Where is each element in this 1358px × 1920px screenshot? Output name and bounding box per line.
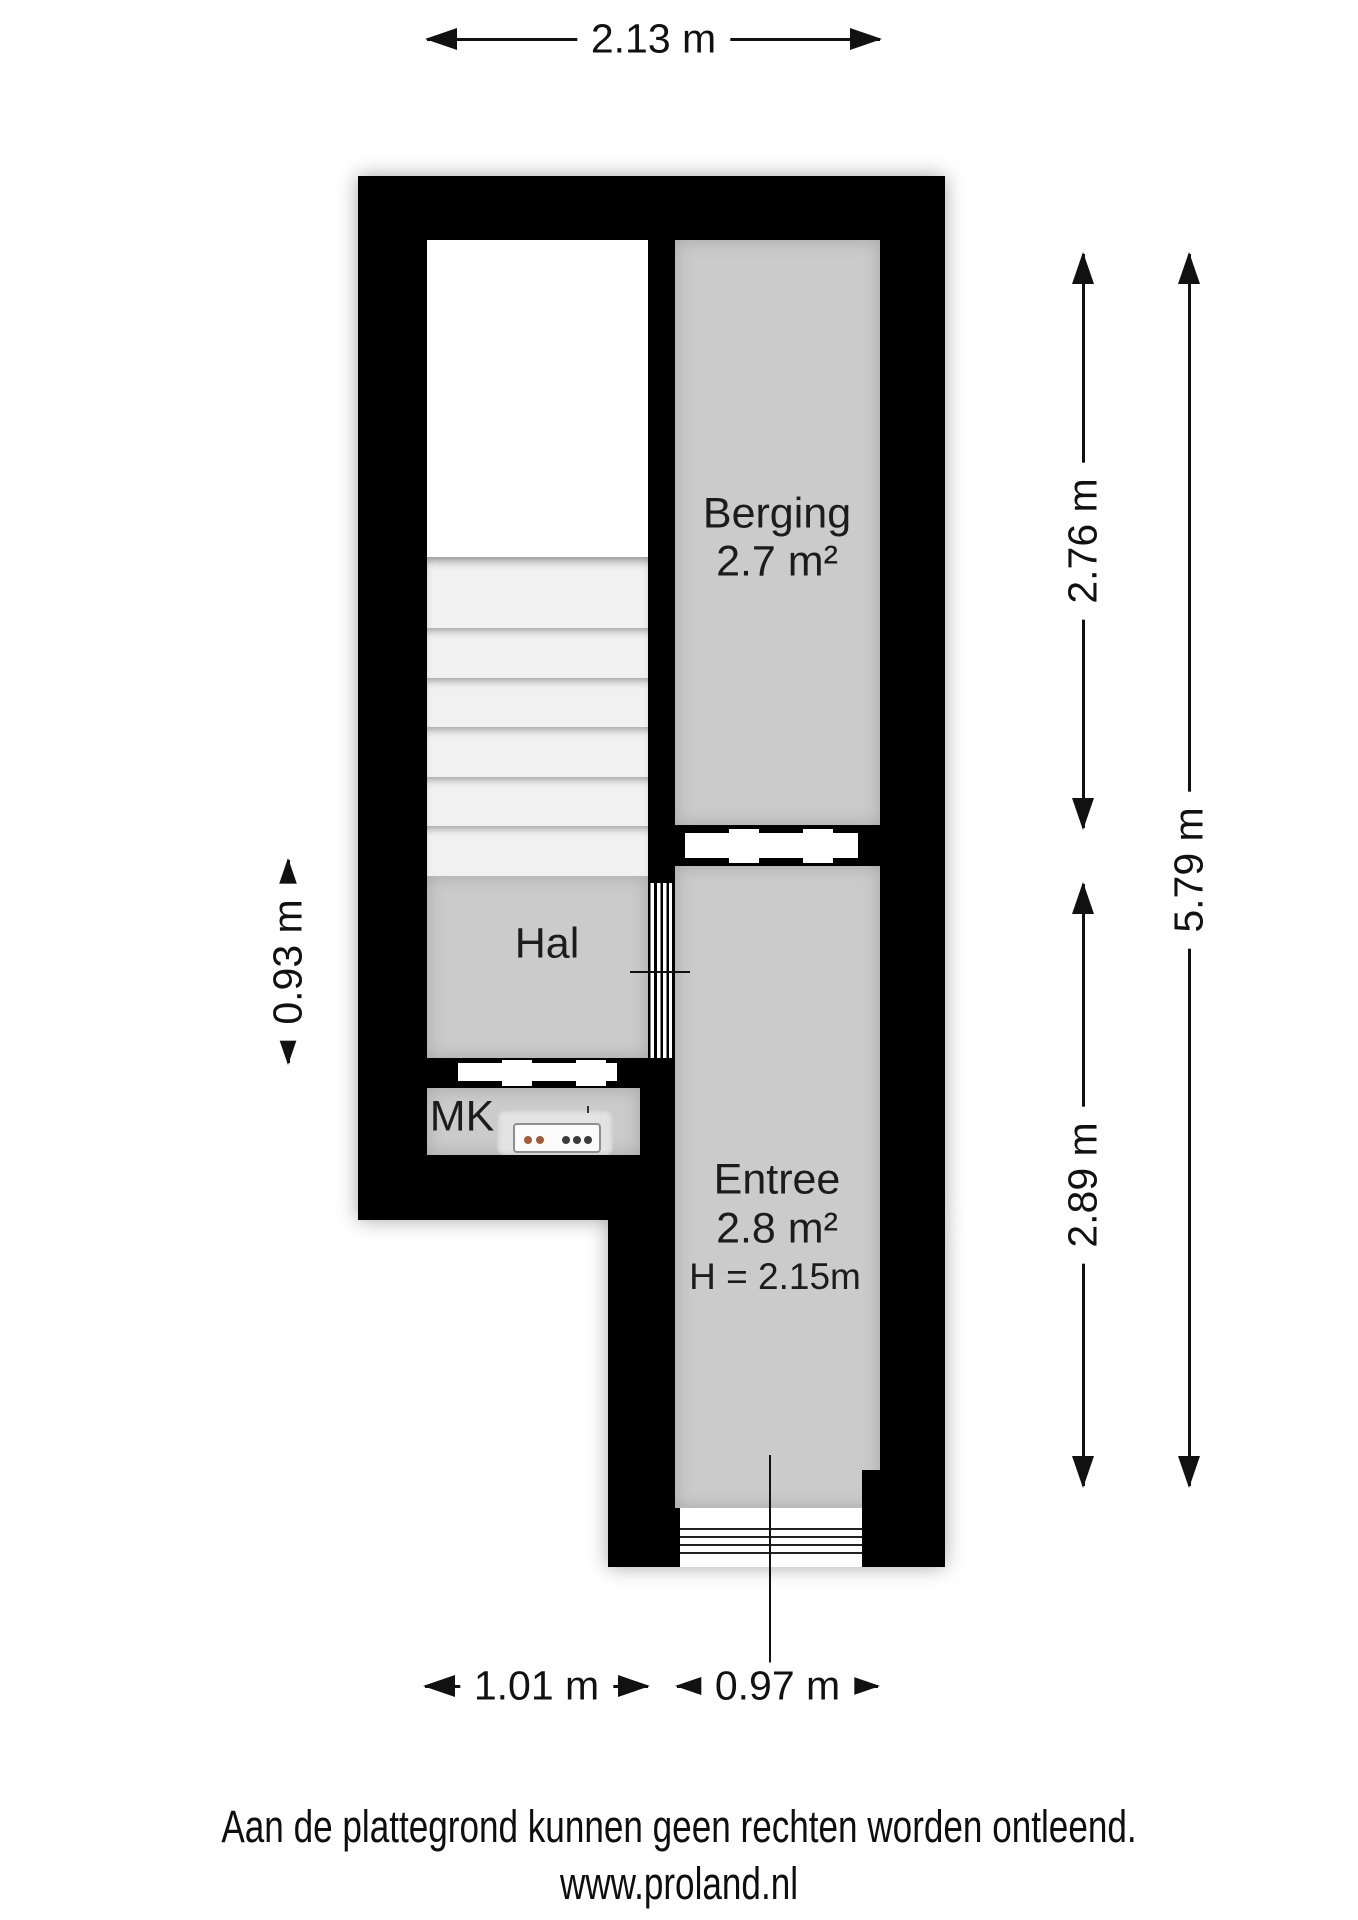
stair-tread — [427, 777, 648, 826]
door-dash-top — [685, 828, 858, 833]
door-swing-line — [630, 971, 690, 973]
meter-box-fuse-dot — [573, 1136, 581, 1144]
arrow-up-icon — [1072, 882, 1094, 914]
sill-line — [680, 1528, 862, 1530]
dimension-label: 2.13 m — [577, 16, 730, 63]
dimension-label: 0.97 m — [701, 1663, 854, 1710]
arrow-up-icon — [1178, 252, 1200, 284]
meter-box-fuse-dot — [584, 1136, 592, 1144]
room-label-mk: MK — [430, 1093, 495, 1142]
meter-box-fuse-dot — [562, 1136, 570, 1144]
sill-line — [680, 1536, 862, 1538]
stair-tread — [427, 628, 648, 678]
door-dash-bottom — [685, 858, 858, 863]
dimension-label: 2.76 m — [1060, 462, 1107, 619]
room-height-entree: H = 2.15m — [689, 1256, 861, 1298]
stair-tread — [427, 727, 648, 777]
room-area-berging: 2.7 m² — [716, 538, 838, 587]
meter-box-fuse-dot — [536, 1136, 544, 1144]
wall-front-door-stub — [862, 1470, 880, 1567]
arrow-left-icon — [423, 1675, 455, 1697]
dimension-label: 0.93 m — [265, 883, 312, 1040]
dimension-label: 2.89 m — [1060, 1106, 1107, 1263]
arrow-down-icon — [1178, 1456, 1200, 1488]
arrow-right-icon — [850, 28, 882, 50]
dimension-label: 1.01 m — [460, 1663, 613, 1710]
front-door-sill — [680, 1508, 862, 1567]
arrow-right-icon — [618, 1675, 650, 1697]
arrow-down-icon — [1072, 1456, 1094, 1488]
footer-disclaimer: Aan de plattegrond kunnen geen rechten w… — [221, 1801, 1136, 1853]
footer-website: www.proland.nl — [560, 1858, 798, 1910]
room-area-entree: 2.8 m² — [716, 1205, 838, 1254]
arrow-down-icon — [1072, 798, 1094, 830]
stair-landing — [427, 240, 648, 557]
meter-box-tick — [587, 1106, 589, 1113]
sill-line — [680, 1552, 862, 1554]
arrow-up-icon — [1072, 252, 1094, 284]
stair-tread — [427, 826, 648, 876]
arrow-left-icon — [425, 28, 457, 50]
dimension-label: 5.79 m — [1166, 791, 1213, 948]
meter-box-fuse-dot — [524, 1136, 532, 1144]
sill-line — [680, 1544, 862, 1546]
floor-plan-page: Berging 2.7 m² Hal MK Entree 2.8 m² H = … — [0, 0, 1358, 1920]
meter-box — [497, 1110, 613, 1155]
staircase — [427, 557, 648, 876]
room-label-entree: Entree — [714, 1156, 841, 1205]
door-dash-bottom — [458, 1081, 617, 1086]
room-label-berging: Berging — [703, 490, 851, 539]
stair-tread — [427, 678, 648, 727]
room-label-hal: Hal — [515, 920, 580, 969]
door-dash-top — [458, 1058, 617, 1063]
stair-tread — [427, 557, 648, 628]
